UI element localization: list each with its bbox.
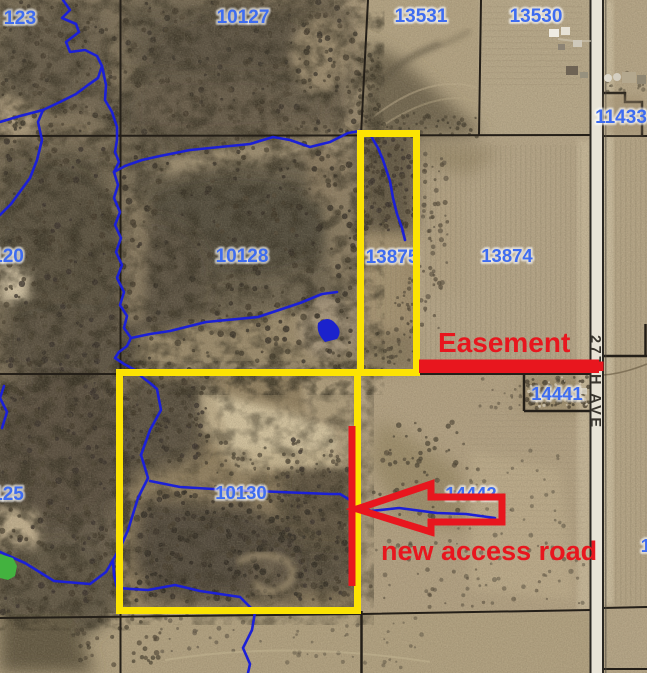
svg-text:13530: 13530 [510, 6, 563, 27]
svg-text:10127: 10127 [217, 7, 270, 28]
svg-text:125: 125 [0, 484, 24, 505]
svg-text:14441: 14441 [531, 383, 582, 404]
svg-text:H AVE: H AVE [587, 374, 603, 430]
svg-text:123: 123 [4, 7, 37, 29]
svg-text:new access road: new access road [381, 536, 597, 566]
svg-text:10130: 10130 [215, 482, 266, 503]
svg-text:14: 14 [641, 535, 647, 556]
svg-text:120: 120 [0, 246, 24, 267]
svg-text:13531: 13531 [395, 6, 448, 27]
svg-text:10128: 10128 [216, 246, 269, 267]
svg-text:13875: 13875 [366, 247, 419, 268]
svg-text:13874: 13874 [481, 245, 533, 266]
svg-text:Easement: Easement [438, 327, 570, 358]
svg-text:11433: 11433 [595, 107, 647, 128]
